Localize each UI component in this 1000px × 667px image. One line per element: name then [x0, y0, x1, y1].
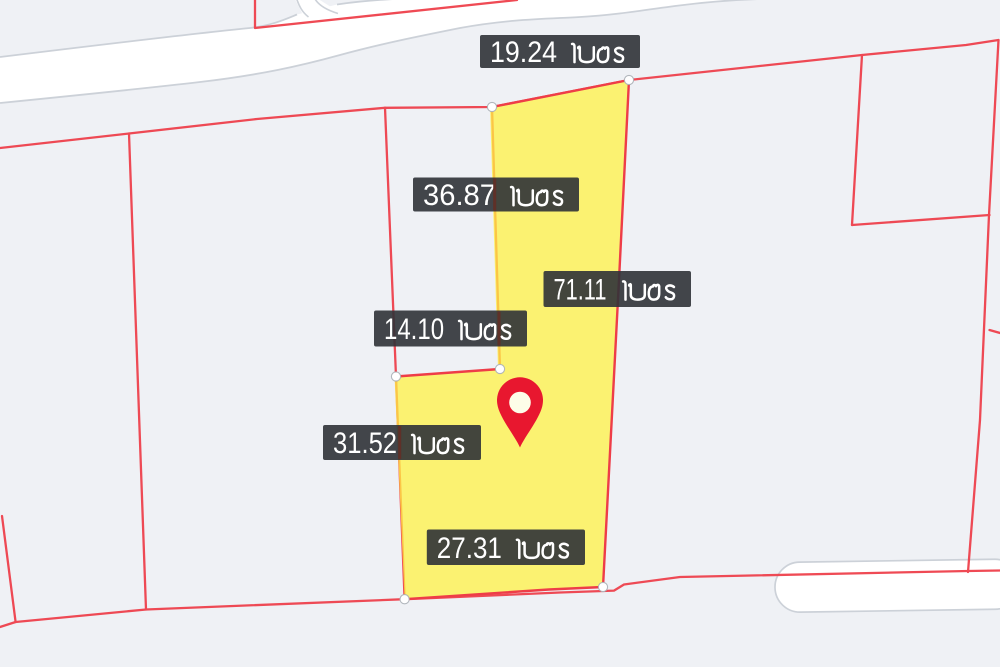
svg-text:14.10: 14.10	[384, 311, 444, 345]
svg-text:31.52: 31.52	[333, 426, 397, 459]
svg-text:27.31: 27.31	[437, 531, 502, 564]
svg-text:36.87: 36.87	[423, 179, 496, 212]
svg-text:71.11: 71.11	[554, 272, 607, 306]
svg-text:19.24: 19.24	[490, 36, 557, 70]
